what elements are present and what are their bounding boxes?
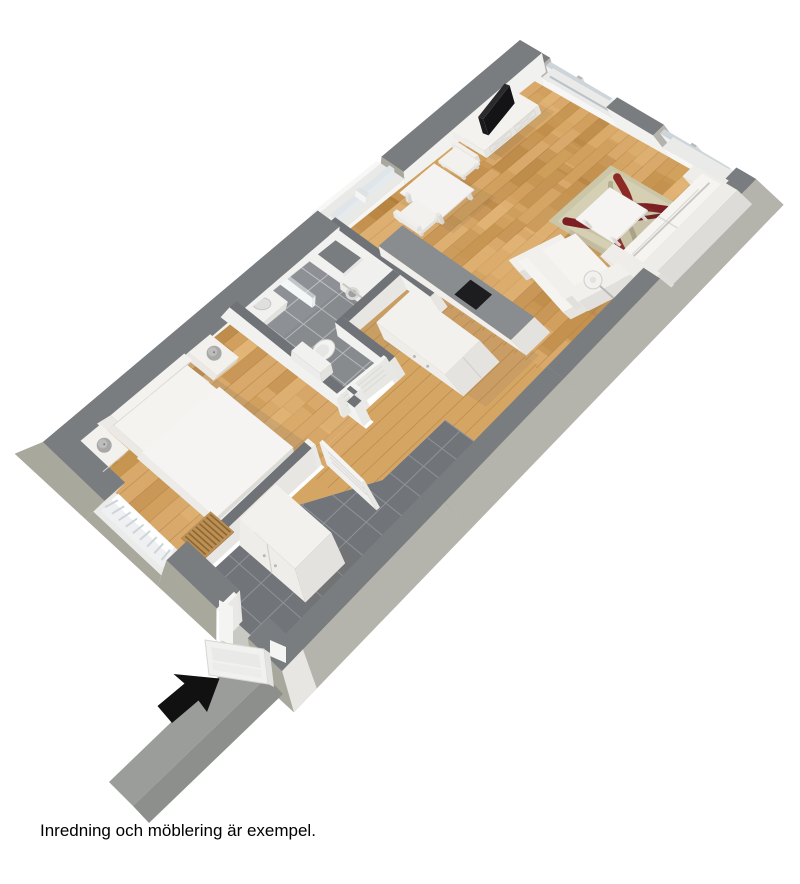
svg-text:Inredning och möblering är exe: Inredning och möblering är exempel. — [40, 821, 316, 840]
